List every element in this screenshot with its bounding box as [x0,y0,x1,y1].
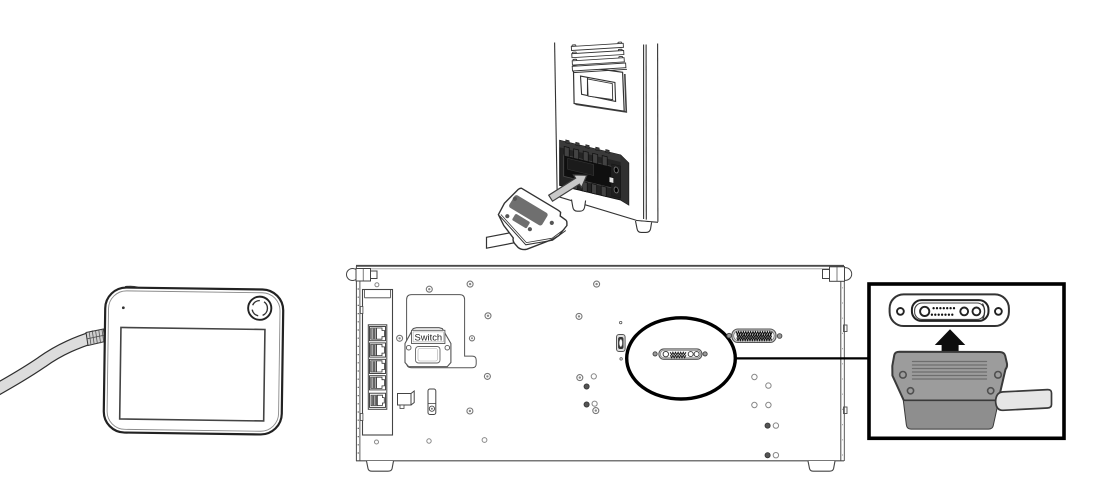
svg-text:Switch: Switch [414,331,442,342]
